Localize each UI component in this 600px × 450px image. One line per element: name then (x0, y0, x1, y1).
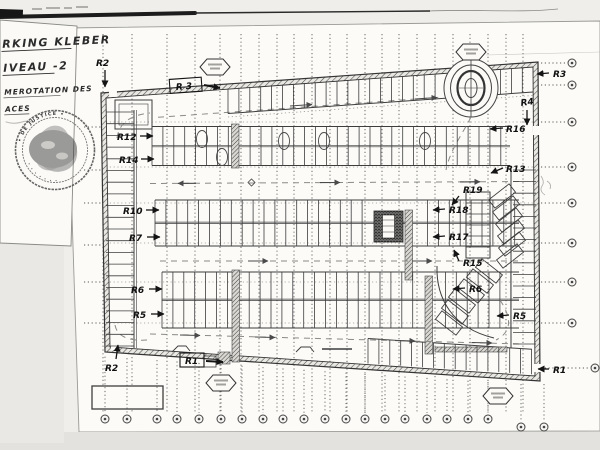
handwritten-arrow (206, 361, 223, 362)
scanned-parking-plan: RKING KLEBER IVEAU -2 MEROTATION DES ACE… (0, 0, 600, 450)
grid-marker-dot (404, 418, 407, 421)
grid-marker-dot (364, 418, 367, 421)
grid-marker-dot (487, 418, 490, 421)
grid-marker-dot (126, 418, 129, 421)
grid-marker-dot (520, 426, 523, 429)
hex-bubble (456, 44, 486, 60)
grid-marker-dot (345, 418, 348, 421)
handwritten-label: R15 (463, 259, 482, 269)
bubble-text-mark (493, 397, 503, 399)
legend-box (92, 386, 163, 409)
handwritten-label: R19 (463, 186, 482, 196)
grid-marker-dot (220, 418, 223, 421)
grid-marker-dot (571, 281, 574, 284)
grid-marker-dot (467, 418, 470, 421)
grid-marker-dot (241, 418, 244, 421)
handwritten-label: R12 (117, 133, 136, 143)
title-line-4: ACES (4, 104, 31, 114)
grid-marker-dot (282, 418, 285, 421)
handwritten-label: R5 (133, 311, 146, 321)
bubble-text-mark (208, 64, 222, 66)
handwritten-label: R6 (469, 285, 482, 295)
grid-marker-dot (571, 84, 574, 87)
grid-marker-dot (303, 418, 306, 421)
grid-marker-dot (571, 62, 574, 65)
handwritten-label: R17 (449, 233, 469, 243)
grid-marker-dot (571, 322, 574, 325)
handwritten-label: R4 (520, 97, 534, 109)
bubble-text-mark (210, 68, 220, 70)
handwritten-label: R 3 (176, 82, 193, 93)
handwritten-label: R2 (96, 59, 109, 69)
grid-marker-dot (571, 166, 574, 169)
handwritten-label: R18 (449, 206, 468, 216)
hex-bubble (206, 375, 236, 391)
grid-marker-dot (426, 418, 429, 421)
grid-marker-dot (571, 121, 574, 124)
spiral-ramp (444, 59, 498, 117)
plan-sheet (66, 21, 600, 432)
bubble-text-mark (214, 380, 228, 382)
grid-marker-dot (594, 367, 597, 370)
handwritten-label: R1 (185, 357, 198, 367)
bubble-text-mark (491, 393, 505, 395)
handwritten-label: R5 (513, 312, 526, 322)
handwritten-label: R13 (506, 165, 525, 175)
bubble-text-mark (464, 49, 478, 51)
grid-marker-dot (104, 418, 107, 421)
grid-marker-dot (324, 418, 327, 421)
handwritten-label: R10 (123, 207, 142, 217)
handwritten-label: R1 (553, 366, 566, 376)
grid-marker-dot (446, 418, 449, 421)
grid-marker-dot (176, 418, 179, 421)
scan-margin-left (0, 243, 64, 443)
plan-scan-svg: RKING KLEBER IVEAU -2 MEROTATION DES ACE… (0, 0, 600, 450)
bubble-text-mark (216, 384, 226, 386)
scan-margin-bottom (0, 432, 600, 450)
grid-marker-dot (571, 202, 574, 205)
handwritten-label: R6 (131, 286, 144, 296)
handwritten-label: R2 (105, 364, 118, 374)
grid-marker-dot (543, 426, 546, 429)
grid-marker-dot (384, 418, 387, 421)
handwritten-label: R7 (129, 234, 143, 244)
handwritten-label: R16 (506, 125, 525, 135)
grid-marker-dot (156, 418, 159, 421)
grid-marker-dot (571, 242, 574, 245)
stair-core (374, 211, 403, 242)
hex-bubble (483, 388, 513, 404)
handwritten-label: R3 (553, 70, 566, 80)
handwritten-label: R14 (119, 156, 138, 166)
grid-marker-dot (198, 418, 201, 421)
grid-marker-dot (262, 418, 265, 421)
hex-bubble (200, 59, 230, 75)
bubble-text-mark (466, 53, 476, 55)
